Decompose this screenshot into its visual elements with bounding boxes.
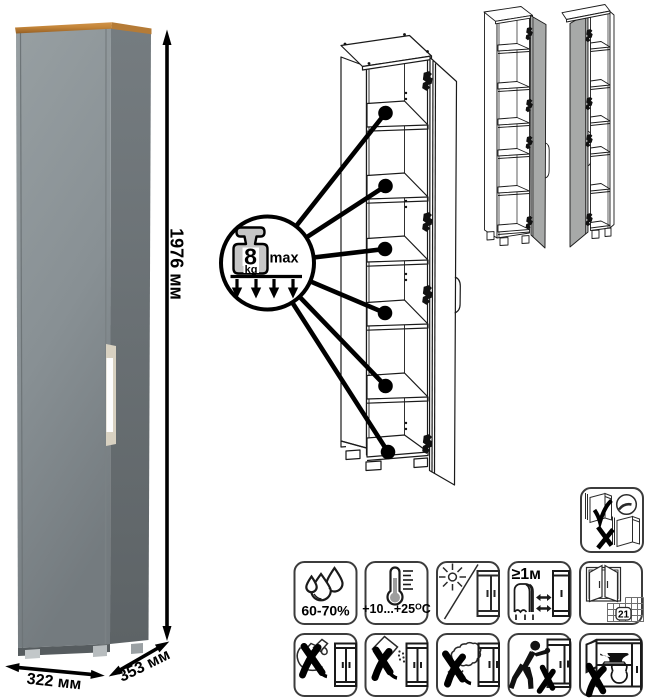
svg-text:≥1м: ≥1м — [512, 566, 542, 583]
svg-text:353 мм: 353 мм — [116, 646, 173, 685]
svg-text:1976 мм: 1976 мм — [167, 228, 187, 300]
svg-text:kg: kg — [245, 264, 258, 276]
svg-text:60-70%: 60-70% — [301, 603, 350, 619]
svg-text:21: 21 — [618, 610, 630, 621]
svg-text:max: max — [269, 251, 298, 267]
